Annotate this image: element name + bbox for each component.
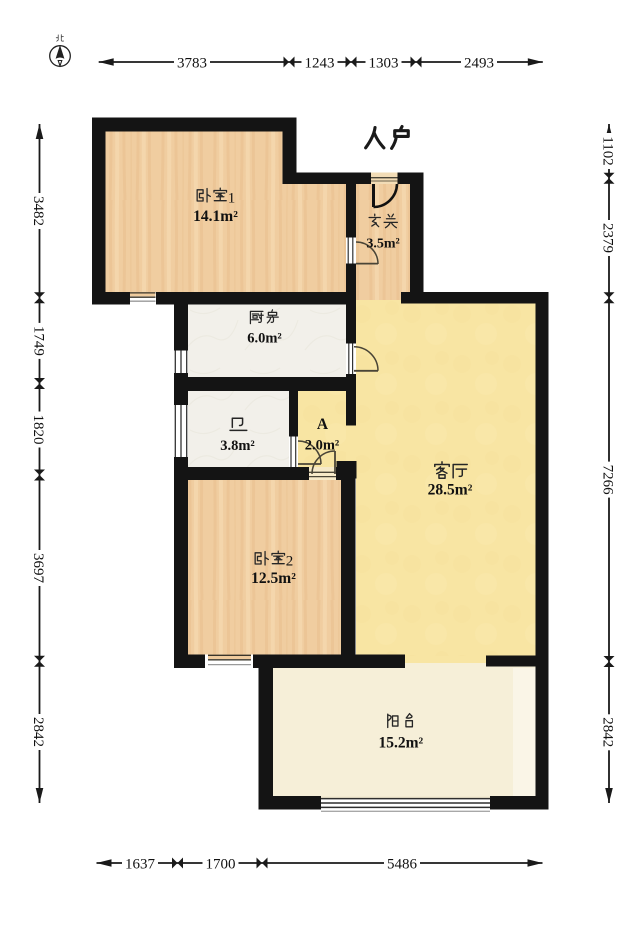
svg-text:28.5m²: 28.5m² — [428, 482, 473, 499]
svg-text:2842: 2842 — [600, 717, 616, 747]
svg-text:3.8m²: 3.8m² — [220, 438, 255, 454]
svg-text:2379: 2379 — [600, 223, 616, 253]
svg-text:1243: 1243 — [305, 55, 335, 71]
svg-text:3697: 3697 — [30, 553, 46, 584]
svg-text:6.0m²: 6.0m² — [247, 331, 282, 347]
svg-text:1700: 1700 — [206, 856, 236, 872]
svg-text:12.5m²: 12.5m² — [251, 570, 296, 587]
svg-text:1: 1 — [228, 191, 236, 207]
svg-text:1749: 1749 — [30, 326, 46, 356]
svg-text:2.0m²: 2.0m² — [305, 438, 340, 454]
svg-text:1637: 1637 — [125, 856, 156, 872]
svg-text:14.1m²: 14.1m² — [193, 208, 238, 225]
svg-text:2493: 2493 — [464, 55, 494, 71]
svg-text:1303: 1303 — [369, 55, 399, 71]
svg-text:3.5m²: 3.5m² — [366, 237, 399, 252]
svg-text:2: 2 — [286, 554, 294, 570]
svg-text:7266: 7266 — [600, 465, 616, 496]
svg-text:1102: 1102 — [600, 136, 616, 165]
svg-text:3783: 3783 — [177, 55, 207, 71]
svg-text:3482: 3482 — [30, 196, 46, 226]
svg-text:A: A — [317, 416, 329, 433]
svg-text:5486: 5486 — [387, 856, 418, 872]
svg-text:2842: 2842 — [30, 717, 46, 747]
svg-text:1820: 1820 — [30, 415, 46, 445]
svg-text:15.2m²: 15.2m² — [378, 735, 423, 752]
